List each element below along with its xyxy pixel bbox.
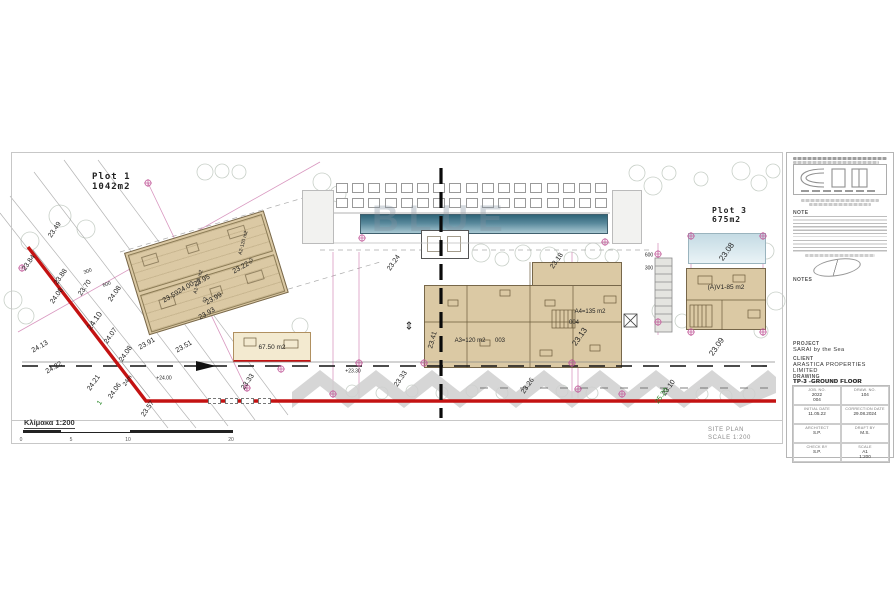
title-block-field: DRAW. NO.104 [841, 386, 889, 405]
unit-67-label: 67.50 m2 [258, 345, 285, 352]
project-value: SARAI by the Sea [793, 347, 845, 353]
contact-line-2 [809, 203, 871, 206]
scale-bar-seg3 [130, 430, 233, 433]
title-block-field: INITIAL DATE11.05.22 [793, 405, 841, 424]
notes-heading: NOTES [793, 277, 812, 283]
scale-bar-seg2 [61, 432, 130, 433]
title-block-field: ARCHITECTS.P. [793, 424, 841, 443]
unit-a4-number: 004 [569, 320, 579, 326]
siteplan-caption: SITE PLAN SCALE 1:200 [708, 427, 751, 443]
title-block-field: DRAFT BYM.S. [841, 424, 889, 443]
site-plan-page: BLUE [0, 0, 895, 597]
spot-elevation: +23.30 [345, 370, 360, 375]
title-block-field: CORRECTION DATE29.08.2024 [841, 405, 889, 424]
title-block: NOTE NOTES PROJECT SARAI by the Sea CLIE… [786, 152, 894, 458]
unit-av1-label: (A)V1-85 m2 [708, 285, 745, 292]
scale-bar-seg1 [23, 430, 61, 433]
unit-a3-number: 003 [495, 338, 505, 344]
sheet-footer-divider [11, 420, 783, 421]
title-block-field: JOB. NO.2022 004 [793, 386, 841, 405]
scale-tick: 20 [228, 437, 234, 443]
drawing-sheet [11, 152, 783, 444]
spot-elevation: +24.00 [156, 377, 171, 382]
contact-line-1 [801, 199, 879, 202]
stamp-icon [812, 255, 862, 279]
spot-elevation: 600 [645, 254, 653, 259]
note-paragraph-1 [793, 216, 887, 237]
title-block-field: CHECK BYS.P. [793, 443, 841, 462]
unit-a3-label: A3=120 m2 [455, 338, 486, 344]
scale-tick: 0 [20, 437, 23, 443]
title-block-field: SCALEA1 1:200 [841, 443, 889, 462]
title-block-table: JOB. NO.2022 004DRAW. NO.104INITIAL DATE… [792, 385, 890, 463]
unit-a4-label: A4=135 m2 [575, 309, 606, 315]
note-paragraph-2 [793, 240, 887, 252]
north-arrow-icon: ⇕ [404, 322, 413, 333]
plot3-label: Plot 3675m2 [712, 206, 747, 224]
spot-elevation: 300 [645, 267, 653, 272]
scale-tick: 5 [70, 437, 73, 443]
scale-tick: 10 [125, 437, 131, 443]
copyright-line [805, 254, 875, 257]
plot1-label: Plot 11042m2 [92, 172, 131, 193]
scale-caption: Κλίμακα 1:200 [24, 418, 75, 429]
firm-logo [793, 164, 887, 195]
client-value: ARASTICA PROPERTIES LIMITED [793, 362, 866, 374]
firm-name-text [793, 157, 887, 160]
